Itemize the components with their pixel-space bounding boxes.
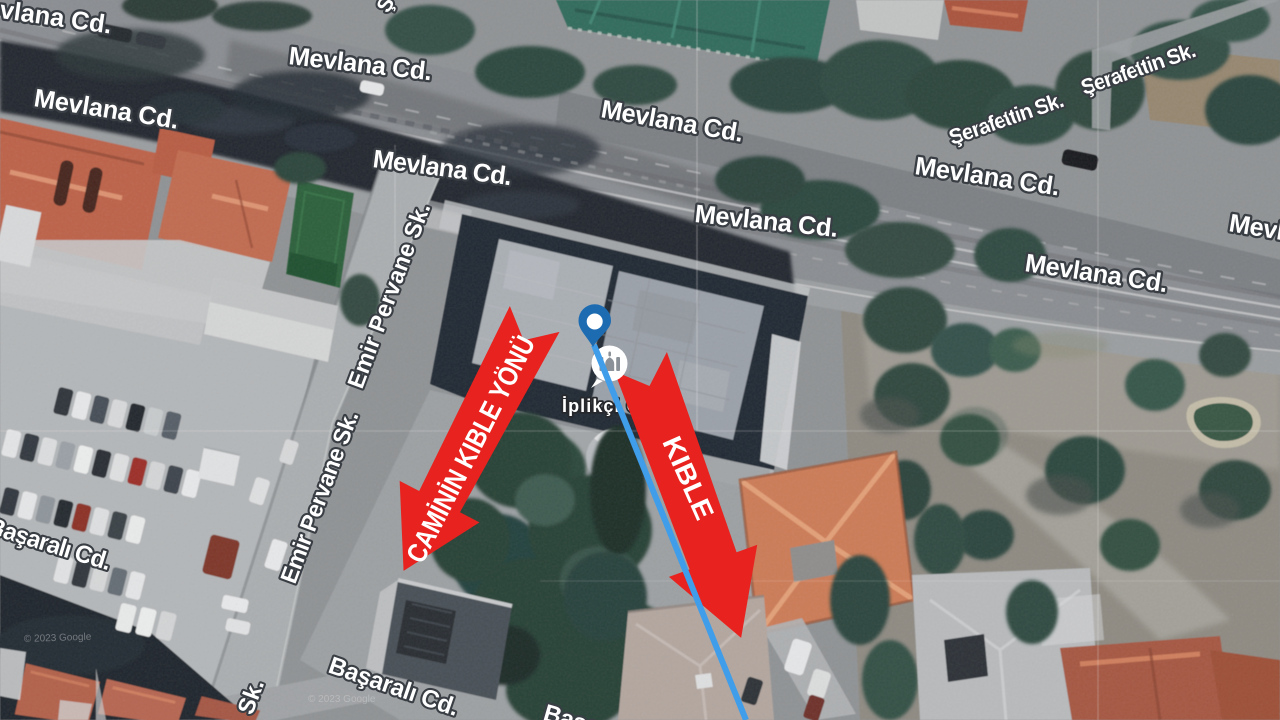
svg-text:© 2023 Google: © 2023 Google <box>308 694 376 705</box>
